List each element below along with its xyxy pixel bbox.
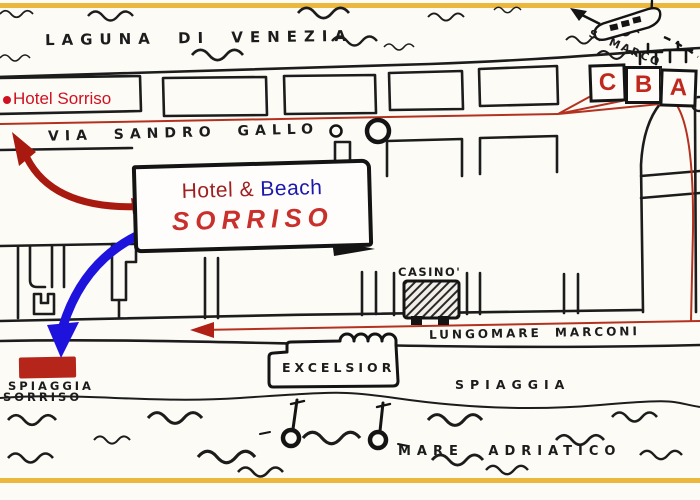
callout-sorriso-text: SORRISO — [171, 201, 334, 237]
beach-marker-rect — [19, 356, 76, 378]
route-arrowhead-left — [190, 322, 214, 338]
stop-letter-c: C — [598, 69, 616, 98]
hotel-marker-dot — [3, 96, 11, 104]
stop-box-b: B — [625, 66, 662, 104]
beach-marker-label-line2: SORRISO — [3, 392, 94, 403]
callout-line1: Hotel & Beach — [181, 176, 322, 204]
map-canvas: LAGUNA DI VENEZIA Hotel Sorriso VIA SAND… — [0, 0, 700, 500]
hotel-callout-box: Hotel & Beach SORRISO — [132, 159, 373, 254]
roundabout-small — [331, 126, 342, 137]
shoreline — [0, 393, 700, 408]
buoy-icons — [260, 400, 408, 448]
beach-marker-label: SPIAGGIA SORRISO — [8, 381, 94, 403]
casino-label: CASINO' — [398, 265, 461, 279]
stop-box-c: C — [588, 63, 626, 102]
sea-label: MARE ADRIATICO — [398, 444, 621, 459]
ferry-direction-arrow — [570, 8, 600, 24]
beach-label: SPIAGGIA — [455, 377, 570, 392]
callout-hotel-text: Hotel & — [181, 177, 254, 202]
roundabout-large — [367, 120, 389, 142]
callout-beach-text: Beach — [260, 176, 323, 201]
excelsior-label: EXCELSIOR — [282, 360, 395, 375]
stop-letter-b: B — [635, 71, 652, 99]
stop-box-a: A — [659, 68, 697, 107]
stop-letter-a: A — [669, 74, 687, 103]
casino-building — [404, 281, 459, 325]
hotel-marker-label: Hotel Sorriso — [13, 89, 111, 109]
